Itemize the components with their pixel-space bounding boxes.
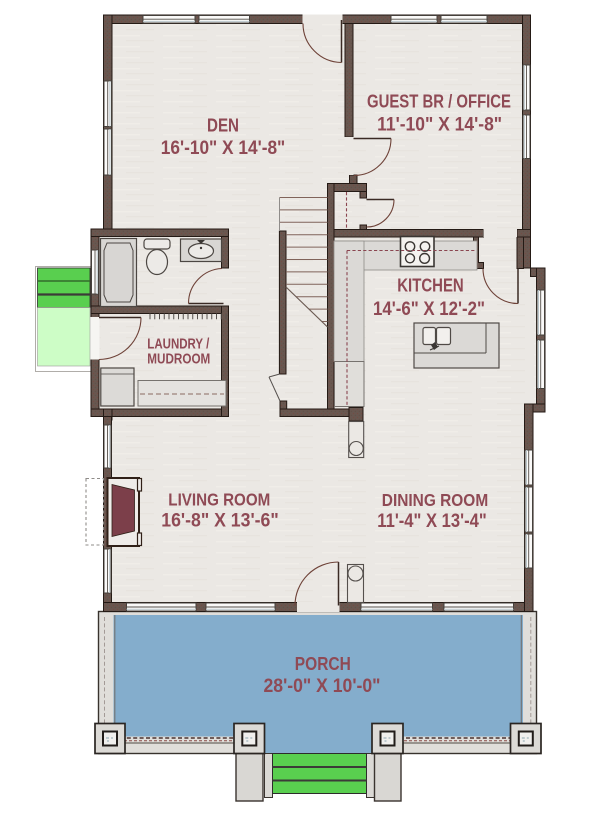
- svg-text:GUEST BR / OFFICE: GUEST BR / OFFICE: [367, 91, 511, 112]
- svg-text:11'-4" X 13'-4": 11'-4" X 13'-4": [377, 511, 486, 532]
- svg-text:MUDROOM: MUDROOM: [147, 351, 210, 368]
- svg-text:16'-10" X 14'-8": 16'-10" X 14'-8": [161, 138, 286, 159]
- svg-text:28'-0" X 10'-0": 28'-0" X 10'-0": [264, 676, 381, 697]
- svg-text:DINING ROOM: DINING ROOM: [382, 490, 488, 510]
- svg-text:11'-10" X 14'-8": 11'-10" X 14'-8": [377, 115, 502, 136]
- svg-text:DEN: DEN: [207, 115, 239, 136]
- svg-text:14'-6" X 12'-2": 14'-6" X 12'-2": [373, 299, 485, 320]
- svg-text:LIVING ROOM: LIVING ROOM: [168, 490, 270, 510]
- svg-text:PORCH: PORCH: [295, 653, 351, 674]
- svg-text:KITCHEN: KITCHEN: [397, 275, 464, 296]
- svg-text:16'-8" X 13'-6": 16'-8" X 13'-6": [161, 511, 279, 532]
